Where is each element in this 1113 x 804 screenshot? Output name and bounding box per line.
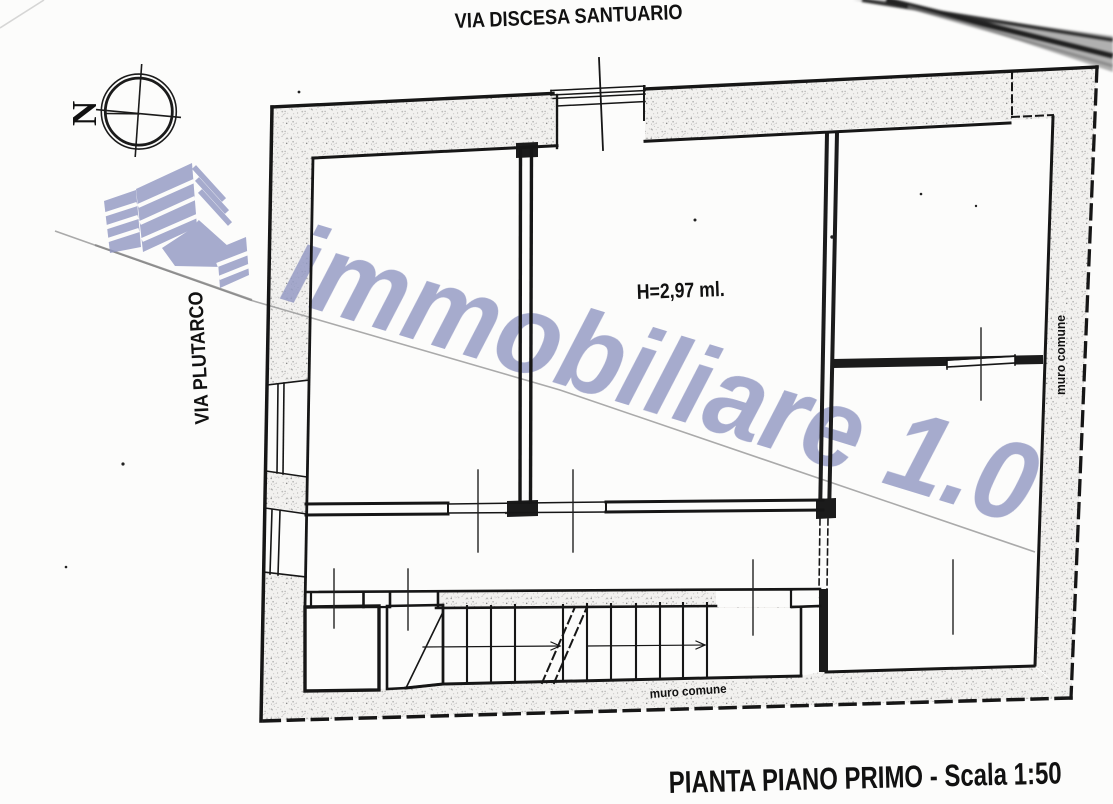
svg-text:N: N: [65, 101, 104, 126]
svg-text:H=2,97 ml.: H=2,97 ml.: [636, 278, 725, 304]
svg-text:muro comune: muro comune: [1054, 315, 1068, 395]
